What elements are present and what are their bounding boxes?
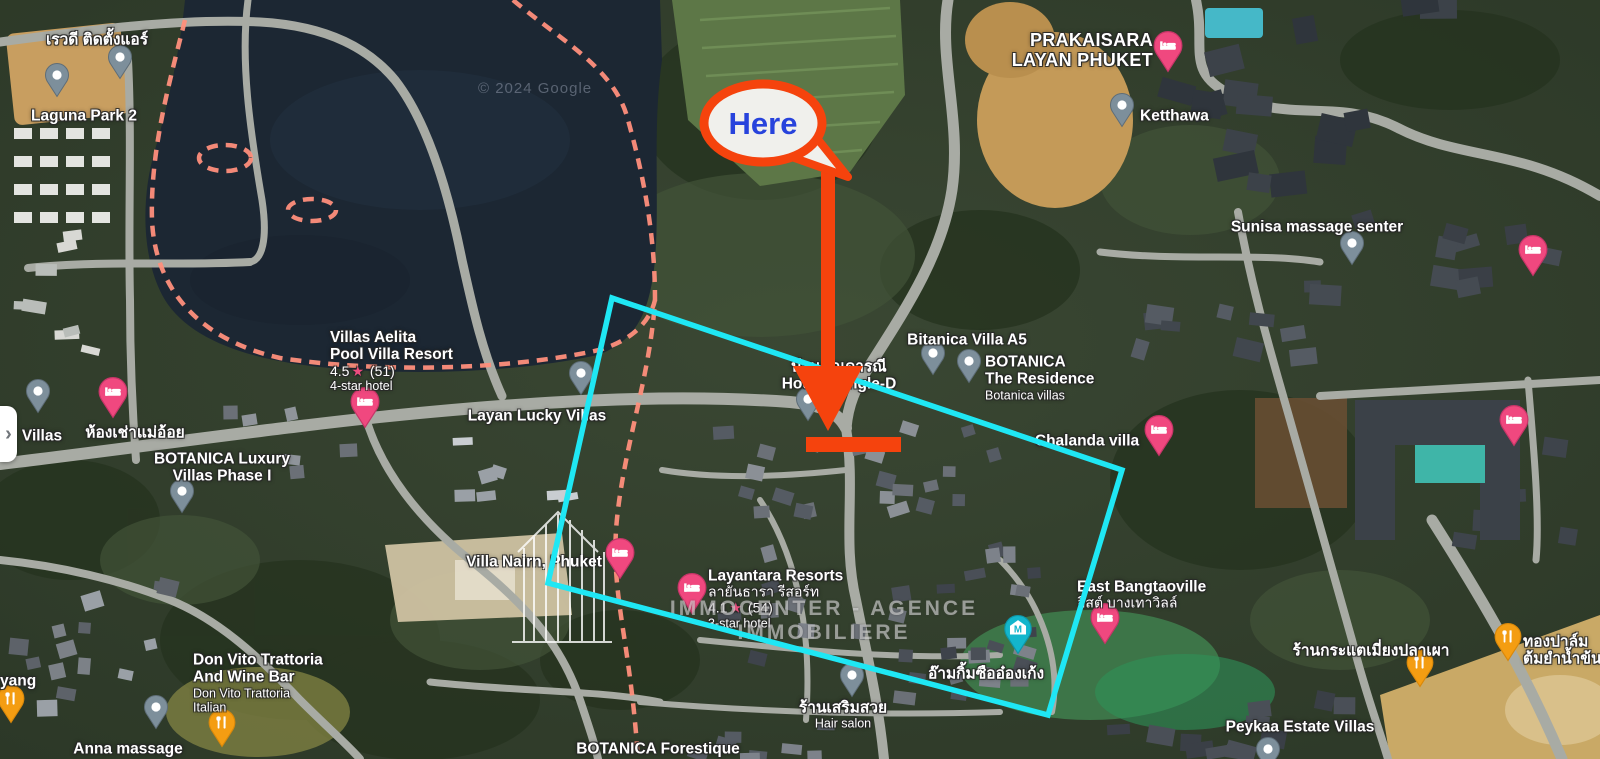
map-pin-ketthawa[interactable]	[1110, 93, 1134, 127]
map-pin-villas-left-edge[interactable]	[26, 379, 50, 413]
map-label-am-kim-sue-ong-keng-shrine[interactable]: อ๊ามกิ้มซืออ๋องเก้ง	[928, 665, 1044, 682]
map-label-line: ห้องเช่าแม่อ้อย	[85, 424, 185, 441]
map-pin-villa-nairn-phuket[interactable]	[606, 538, 635, 579]
side-panel-toggle-button[interactable]: ›	[0, 406, 17, 462]
map-label-villas-aelita-pool-villa-resort[interactable]: Villas AelitaPool Villa Resort4.5★ (51)4…	[330, 329, 453, 393]
map-pin-sunisa-massage-senter[interactable]	[1340, 231, 1364, 265]
map-label-line: yang	[0, 672, 36, 689]
map-label-line: Villa Nairn, Phuket	[466, 553, 602, 570]
map-label-line: Villas Aelita	[330, 329, 453, 346]
map-label-line: BOTANICA Luxury	[154, 451, 290, 468]
map-label-line: ร้านเสริมสวย	[799, 699, 887, 716]
map-label-line: Chalanda villa	[1035, 432, 1139, 449]
map-label-baan-khun-daranee-house[interactable]: บ้านคุณดารณีHouse Single-D	[782, 359, 897, 394]
map-label-line: Don Vito Trattoria	[193, 686, 323, 700]
map-label-line: BOTANICA Forestique	[576, 740, 740, 757]
map-pin-hair-salon[interactable]	[840, 663, 864, 697]
rating-star-icon: ★	[349, 363, 366, 379]
map-pin-yang-left-edge[interactable]	[0, 685, 25, 723]
rating-star-icon: ★	[727, 600, 744, 616]
map-label-yang-left-edge[interactable]: yang	[0, 672, 36, 689]
map-label-line: Laguna Park 2	[31, 107, 137, 124]
map-label-line: The Residence	[985, 371, 1094, 388]
map-label-line: ทองปาล์ม	[1523, 634, 1600, 651]
map-label-line: Anna massage	[73, 740, 182, 757]
map-canvas[interactable]: เรวดี ติดตั้งแอร์Laguna Park 2PRAKAISARA…	[0, 0, 1600, 759]
map-pin-don-vito-trattoria[interactable]	[209, 709, 236, 747]
map-label-revadee-air-service[interactable]: เรวดี ติดตั้งแอร์	[46, 31, 148, 48]
map-label-east-bangtaoville[interactable]: East Bangtaovilleอีสต์ บางเทาวิลล์	[1077, 578, 1206, 611]
map-pin-peykaa-estate-villas[interactable]	[1256, 737, 1280, 759]
map-label-line: ต้มยำน้ำข้น	[1523, 651, 1600, 668]
map-label-sunisa-massage-senter[interactable]: Sunisa massage senter	[1231, 218, 1403, 235]
map-label-line: 4.1★ (54)	[708, 601, 843, 617]
map-pin-hong-chao-mae-oi[interactable]	[99, 377, 128, 418]
map-pin-thong-palm-tom-yum[interactable]	[1495, 623, 1522, 661]
map-label-line: BOTANICA	[985, 354, 1094, 371]
map-label-thong-palm-tom-yum[interactable]: ทองปาล์มต้มยำน้ำข้น	[1523, 634, 1600, 669]
map-label-line: อีสต์ บางเทาวิลล์	[1077, 596, 1206, 612]
map-pin-anna-massage[interactable]	[144, 695, 168, 729]
map-label-botanica-the-residence[interactable]: BOTANICAThe ResidenceBotanica villas	[985, 354, 1094, 403]
map-label-line: LAYAN PHUKET	[1012, 50, 1153, 70]
map-label-ketthawa[interactable]: Ketthawa	[1140, 107, 1209, 124]
map-pin-prakaisara-layan-phuket[interactable]	[1154, 31, 1183, 72]
map-label-line: Bitanica Villa A5	[907, 331, 1027, 348]
map-label-laguna-park-2[interactable]: Laguna Park 2	[31, 107, 137, 124]
map-pin-laguna-park-2[interactable]	[45, 63, 69, 97]
map-label-line: Layantara Resorts	[708, 568, 843, 585]
map-label-villa-nairn-phuket[interactable]: Villa Nairn, Phuket	[466, 553, 602, 570]
map-label-layan-lucky-villas[interactable]: Layan Lucky Villas	[468, 407, 606, 424]
map-label-bitanica-villa-a5[interactable]: Bitanica Villa A5	[907, 331, 1027, 348]
map-label-line: ลายันธารา รีสอร์ท	[708, 585, 843, 601]
map-label-line: House Single-D	[782, 376, 897, 393]
map-label-line: Villas Phase I	[154, 468, 290, 485]
map-label-botanica-luxury-villas-phase-1[interactable]: BOTANICA LuxuryVillas Phase I	[154, 451, 290, 486]
map-label-line: 3-star hotel	[708, 616, 843, 630]
map-label-layantara-resorts[interactable]: Layantara Resortsลายันธารา รีสอร์ท4.1★ (…	[708, 568, 843, 631]
map-label-line: Layan Lucky Villas	[468, 407, 606, 424]
map-label-line: เรวดี ติดตั้งแอร์	[46, 31, 148, 48]
map-label-chalanda-villa[interactable]: Chalanda villa	[1035, 432, 1139, 449]
map-label-villas-left-edge[interactable]: Villas	[22, 427, 62, 444]
map-label-line: East Bangtaoville	[1077, 578, 1206, 595]
map-label-line: Don Vito Trattoria	[193, 652, 323, 669]
map-pin-botanica-the-residence[interactable]	[957, 349, 981, 383]
map-label-line: บ้านคุณดารณี	[782, 359, 897, 376]
map-label-peykaa-estate-villas[interactable]: Peykaa Estate Villas	[1226, 718, 1375, 735]
map-label-line: Villas	[22, 427, 62, 444]
map-label-line: Hair salon	[799, 717, 887, 731]
map-pin-layan-lucky-villas[interactable]	[569, 361, 593, 395]
map-label-line: 4.5★ (51)	[330, 364, 453, 380]
map-label-don-vito-trattoria[interactable]: Don Vito TrattoriaAnd Wine BarDon Vito T…	[193, 652, 323, 715]
map-label-line: Peykaa Estate Villas	[1226, 718, 1375, 735]
chevron-right-icon: ›	[5, 423, 12, 446]
map-label-anna-massage[interactable]: Anna massage	[73, 740, 182, 757]
map-label-line: Sunisa massage senter	[1231, 218, 1403, 235]
map-label-line: ร้านกระแตเมี่ยงปลาเผา	[1292, 642, 1449, 659]
map-label-line: And Wine Bar	[193, 669, 323, 686]
map-label-line: PRAKAISARA	[1012, 30, 1153, 50]
map-pin-hotel-pin-right-mid[interactable]	[1500, 405, 1529, 446]
svg-text:M: M	[1014, 625, 1022, 636]
map-pin-revadee-air-service[interactable]	[108, 45, 132, 79]
map-label-line: Botanica villas	[985, 388, 1094, 402]
map-pin-chalanda-villa[interactable]	[1145, 415, 1174, 456]
map-label-line: Italian	[193, 700, 323, 714]
map-label-line: อ๊ามกิ้มซืออ๋องเก้ง	[928, 665, 1044, 682]
map-pin-hotel-pin-right-top[interactable]	[1519, 235, 1548, 276]
map-label-botanica-forestique[interactable]: BOTANICA Forestique	[576, 740, 740, 757]
map-label-hair-salon[interactable]: ร้านเสริมสวยHair salon	[799, 699, 887, 730]
map-label-krataek-miang-pla-phao[interactable]: ร้านกระแตเมี่ยงปลาเผา	[1292, 642, 1449, 659]
map-label-line: Ketthawa	[1140, 107, 1209, 124]
map-label-line: 4-star hotel	[330, 379, 453, 393]
map-label-prakaisara-layan-phuket[interactable]: PRAKAISARALAYAN PHUKET	[1012, 30, 1153, 70]
map-label-line: Pool Villa Resort	[330, 346, 453, 363]
map-pin-am-kim-sue-ong-keng-shrine[interactable]: M	[1004, 615, 1032, 654]
map-label-hong-chao-mae-oi[interactable]: ห้องเช่าแม่อ้อย	[85, 424, 185, 441]
map-pin-layantara-resorts[interactable]	[678, 573, 707, 614]
